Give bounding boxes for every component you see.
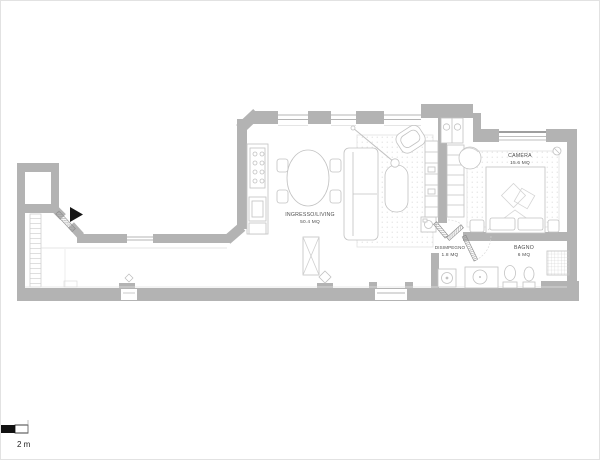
french-window-south — [375, 289, 407, 300]
wardrobe-living-side — [425, 141, 438, 217]
vanity-sink — [465, 267, 498, 288]
nightstand-left — [470, 220, 484, 232]
column-base — [125, 274, 133, 282]
label-disimpegno-name: DISIMPEGNO — [435, 245, 466, 250]
pouf — [459, 147, 481, 169]
label-camera-area: 15.6 MQ — [510, 160, 530, 166]
camera-door-leaf — [447, 225, 464, 241]
label-living-area: 50.4 MQ — [300, 219, 320, 225]
entry-arrow-icon — [70, 207, 83, 222]
sofa — [344, 148, 378, 240]
bed — [486, 167, 545, 233]
gate-south — [121, 289, 137, 300]
window-camera — [499, 129, 546, 142]
label-disimpegno-area: 1.8 MQ — [442, 252, 459, 258]
floor-plan-canvas: INGRESSO/LIVING 50.4 MQ CAMERA 15.6 MQ D… — [1, 1, 600, 460]
console-table — [303, 237, 319, 275]
living-furniture — [247, 123, 438, 283]
wall-lamp — [553, 147, 561, 155]
top-cabinet — [441, 118, 463, 143]
floor-plan: INGRESSO/LIVING 50.4 MQ CAMERA 15.6 MQ D… — [0, 0, 600, 460]
label-living-name: INGRESSO/LIVING — [285, 212, 335, 218]
washing-machine — [438, 269, 456, 287]
stool — [319, 271, 331, 283]
shower — [547, 251, 569, 275]
doormat — [64, 281, 77, 287]
label-bagno-area: 6 MQ — [518, 252, 531, 258]
label-camera-name: CAMERA — [508, 153, 532, 159]
coffee-table — [385, 165, 408, 212]
nightstand-right — [548, 220, 559, 232]
bidet — [523, 267, 535, 288]
ladder — [30, 214, 41, 287]
scale-bar: 2 m — [1, 420, 31, 449]
windows-north-living — [278, 115, 421, 126]
label-bagno-name: BAGNO — [514, 245, 534, 251]
toilet — [503, 266, 517, 289]
window-southwest — [127, 234, 153, 243]
dining-set — [277, 150, 341, 206]
kitchen — [247, 144, 268, 234]
scale-label: 2 m — [17, 440, 31, 449]
